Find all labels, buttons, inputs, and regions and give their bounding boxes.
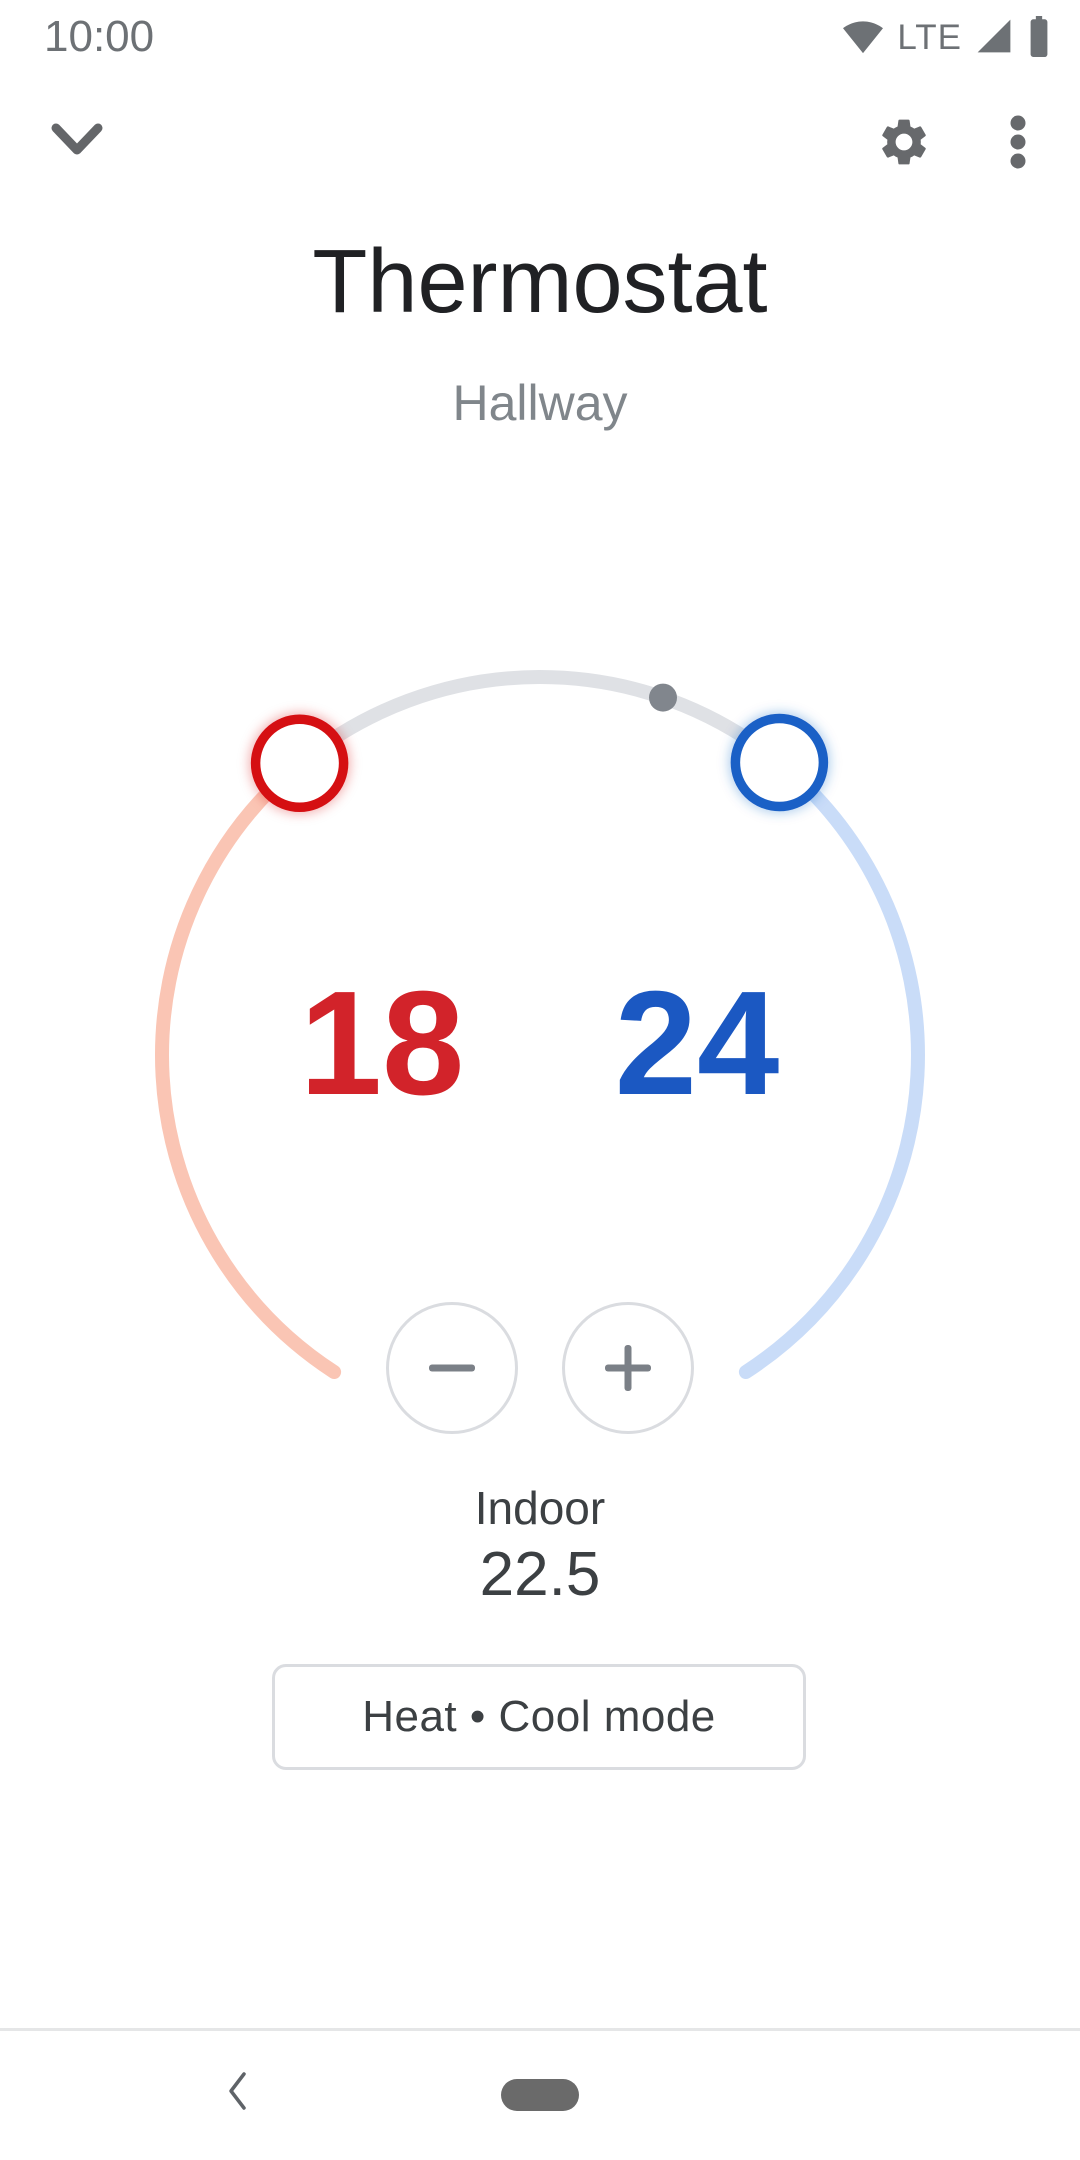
status-icon-cluster: LTE	[842, 16, 1052, 60]
increase-button[interactable]	[562, 1302, 694, 1434]
plus-icon-vertical	[625, 1345, 632, 1391]
collapse-button[interactable]	[42, 112, 112, 172]
idle-track-arc	[300, 677, 780, 763]
page-title: Thermostat	[0, 232, 1080, 332]
cool-setpoint-value: 24	[615, 964, 780, 1124]
gear-icon	[876, 114, 932, 175]
minus-icon	[429, 1365, 475, 1372]
current-temp-dot	[649, 684, 677, 712]
overflow-menu-button[interactable]	[994, 108, 1042, 180]
heat-handle[interactable]	[256, 719, 344, 807]
settings-button[interactable]	[868, 108, 940, 180]
wifi-icon	[842, 18, 884, 59]
cool-handle[interactable]	[735, 719, 823, 807]
back-button[interactable]	[214, 2070, 260, 2116]
heat-setpoint-value: 18	[300, 964, 465, 1124]
network-type-label: LTE	[897, 18, 962, 58]
chevron-left-icon	[226, 2071, 248, 2116]
thermostat-screen: 10:00 LTE Thermostat Hallway	[0, 0, 1080, 2160]
clock: 10:00	[44, 12, 154, 62]
home-gesture-pill[interactable]	[501, 2079, 579, 2111]
decrease-button[interactable]	[386, 1302, 518, 1434]
room-subtitle: Hallway	[0, 374, 1080, 432]
cell-signal-icon	[975, 18, 1013, 59]
indoor-temperature: 22.5	[0, 1540, 1080, 1610]
chevron-down-icon	[48, 121, 106, 164]
indoor-label: Indoor	[0, 1482, 1080, 1534]
battery-icon	[1026, 15, 1052, 62]
nav-divider	[0, 2028, 1080, 2031]
kebab-menu-icon	[1010, 115, 1026, 174]
mode-button-label: Heat • Cool mode	[362, 1692, 716, 1742]
mode-button[interactable]: Heat • Cool mode	[272, 1664, 806, 1770]
thermostat-dial	[0, 600, 1080, 1460]
